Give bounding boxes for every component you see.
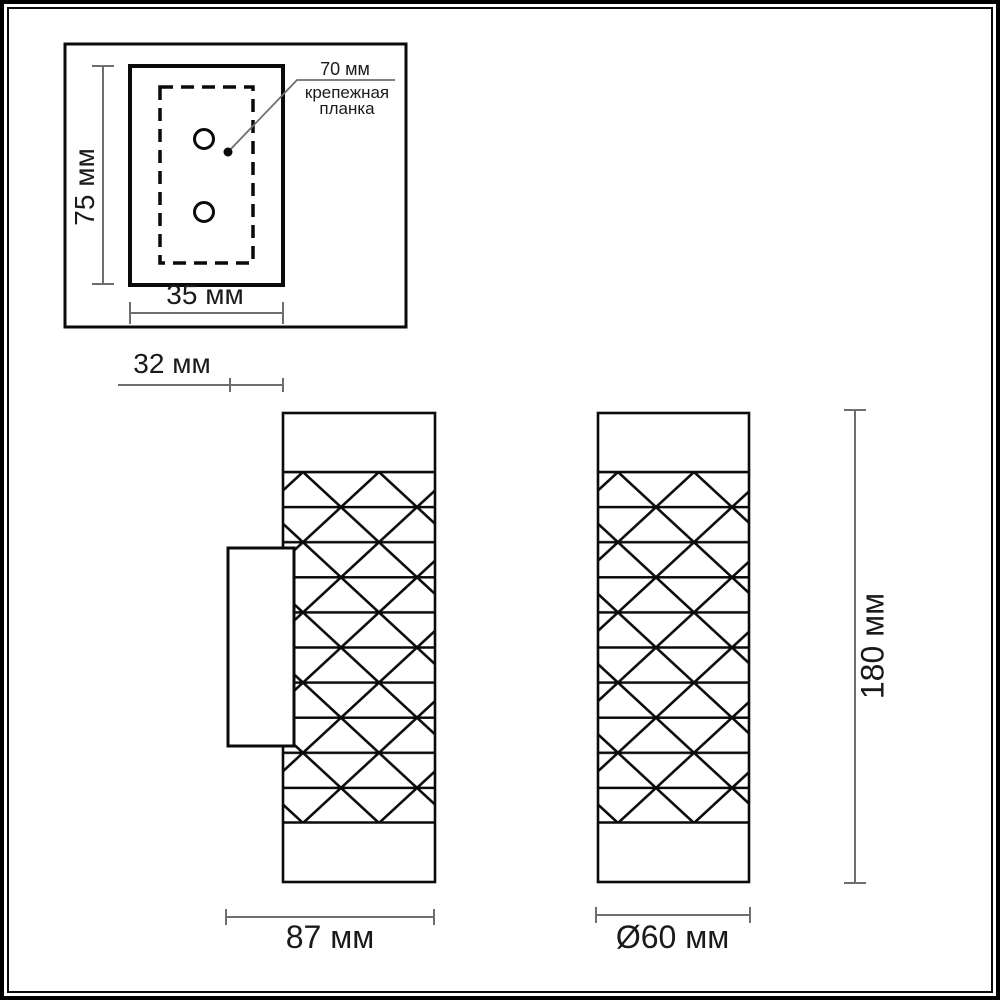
plate-height-label: 75 мм (70, 127, 102, 247)
lamp-side-diamond-pattern (283, 472, 435, 823)
technical-drawing-canvas: 70 мм крепежная планка 75 мм 35 мм 32 мм… (0, 0, 1000, 1000)
dim-line-bracket-depth (118, 378, 283, 392)
wall-bracket (228, 548, 294, 746)
drawing-artwork (0, 0, 1000, 1000)
callout-dot (224, 148, 233, 157)
lamp-side-view (228, 413, 435, 882)
overall-depth-label: 87 мм (255, 920, 405, 954)
bracket-depth-label: 32 мм (112, 349, 232, 379)
mounting-plate-callout: крепежная планка (295, 85, 399, 117)
lamp-front-diamond-pattern (598, 472, 749, 823)
height-label: 180 мм (856, 574, 890, 719)
screw-hole-top (195, 130, 214, 149)
screw-hole-bottom (195, 203, 214, 222)
callout-line2: планка (295, 101, 399, 117)
hole-spacing-label: 70 мм (303, 60, 387, 78)
plate-width-label: 35 мм (145, 280, 265, 310)
diameter-label: Ø60 мм (590, 920, 755, 954)
lamp-front-view (598, 413, 749, 882)
mounting-plate-outline (130, 66, 283, 285)
